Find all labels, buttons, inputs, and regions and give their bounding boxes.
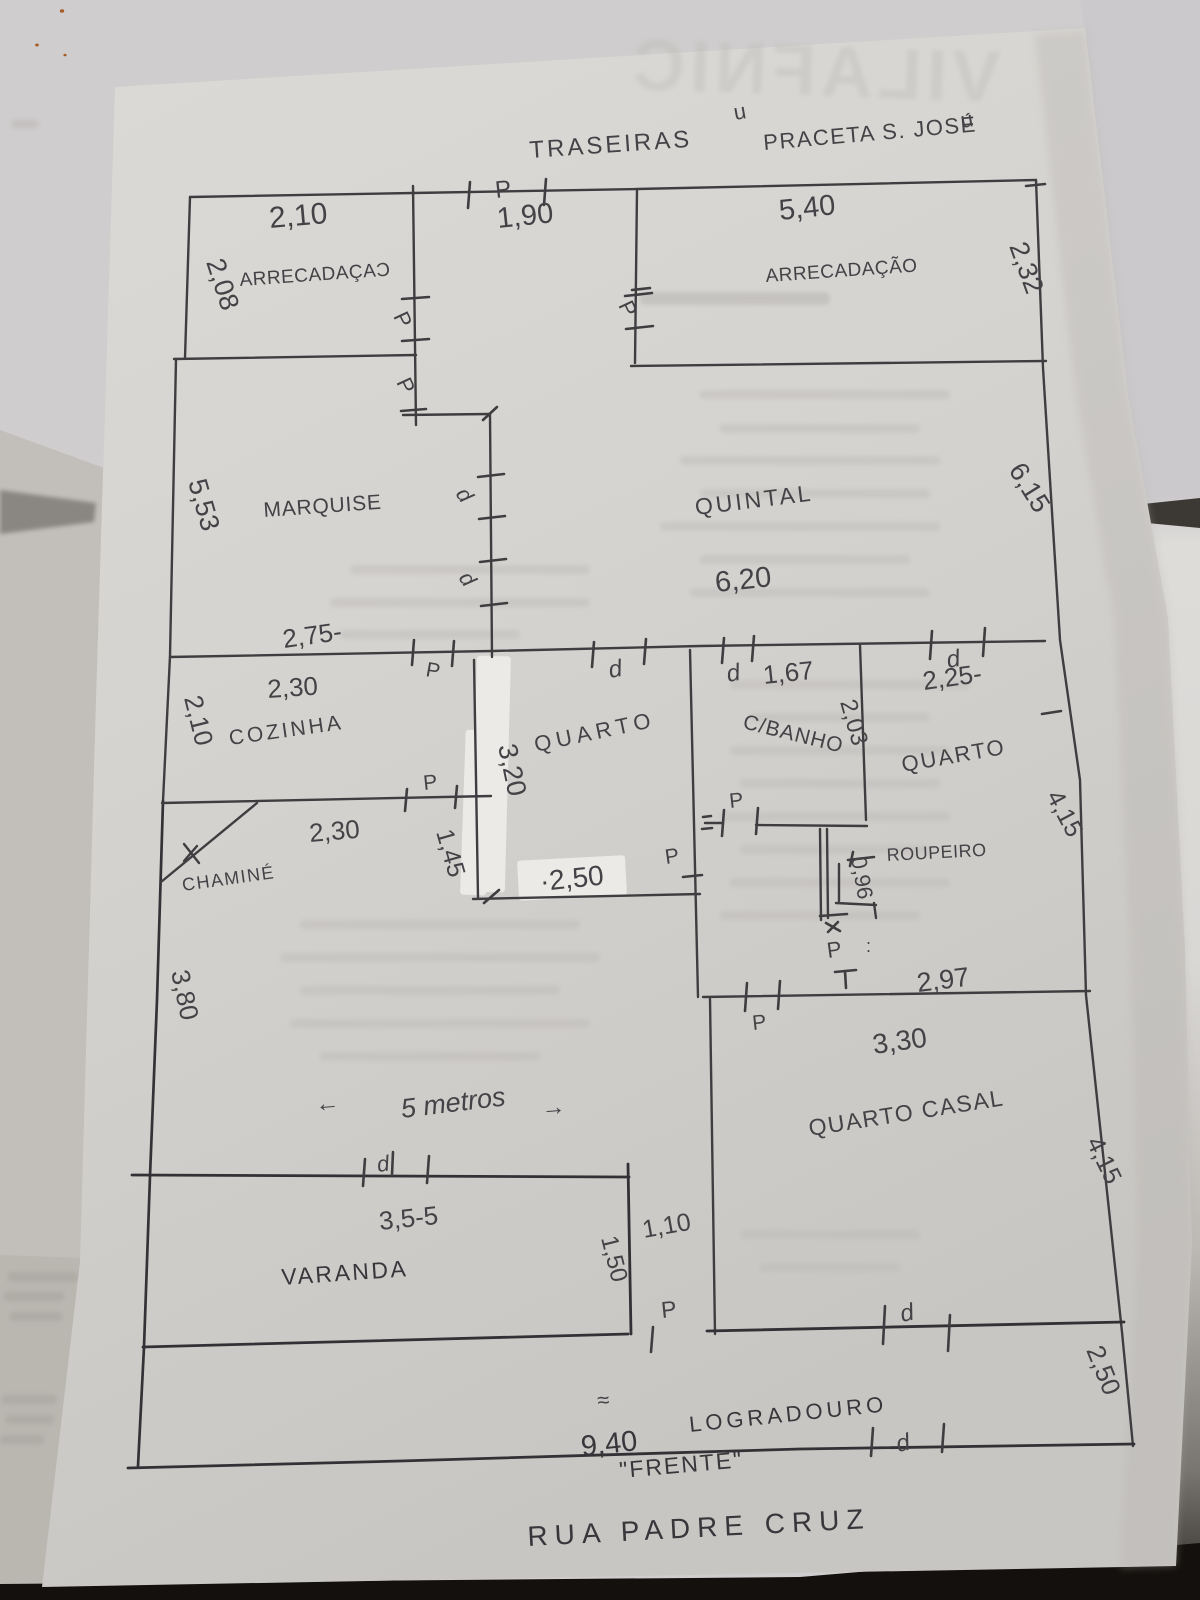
svg-text:P: P [494,175,513,204]
svg-text:P: P [660,1296,678,1323]
svg-text::: : [866,936,871,956]
svg-text:3,5-5: 3,5-5 [377,1200,439,1236]
svg-text:P: P [728,789,744,813]
svg-text:2,30: 2,30 [308,814,361,848]
svg-text:P: P [422,771,438,795]
svg-text:VILAFNIC: VILAFNIC [627,25,1002,118]
svg-text:·2,50: ·2,50 [538,859,605,897]
svg-text:→: → [540,1093,566,1122]
svg-text:←: ← [314,1089,340,1118]
svg-text:1,67: 1,67 [761,655,814,690]
svg-text:5,40: 5,40 [777,189,836,227]
svg-text:2,10: 2,10 [268,197,329,235]
svg-text:1,90: 1,90 [495,197,554,235]
svg-text:2,97: 2,97 [915,962,971,998]
svg-text:P: P [751,1011,767,1035]
svg-text:6,20: 6,20 [713,561,772,599]
svg-text:2,30: 2,30 [266,671,319,704]
